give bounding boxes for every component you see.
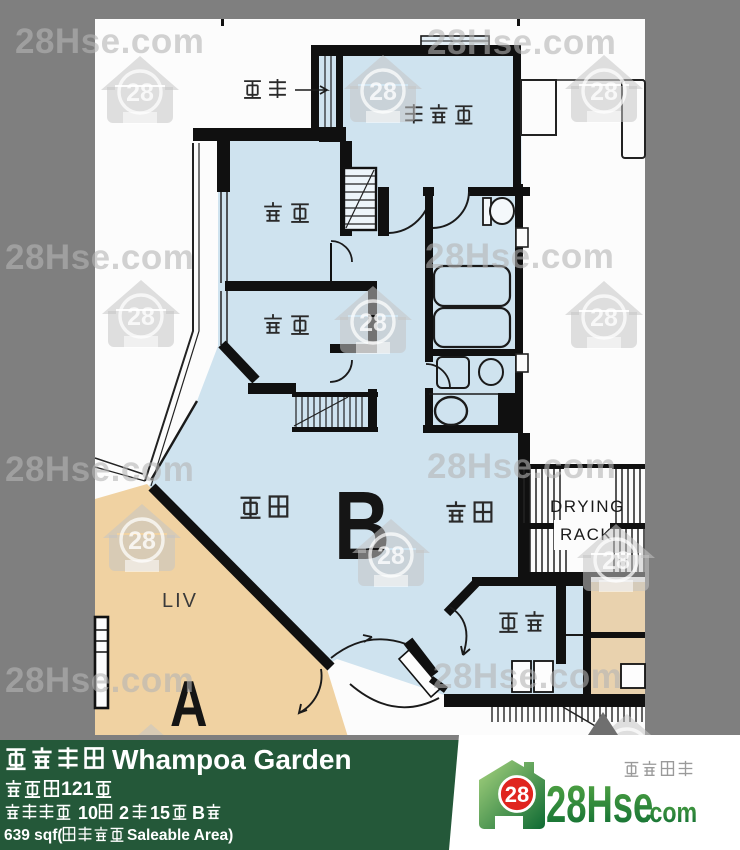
svg-text:28Hse.com: 28Hse.com — [427, 447, 616, 486]
svg-text:28Hse.com: 28Hse.com — [5, 238, 194, 277]
svg-text:B: B — [192, 803, 205, 823]
svg-text:28: 28 — [505, 782, 529, 807]
svg-text:2: 2 — [119, 803, 129, 823]
svg-text:Saleable Area): Saleable Area) — [127, 827, 233, 844]
svg-text:28Hse.com: 28Hse.com — [5, 450, 194, 489]
svg-text:28Hse.com: 28Hse.com — [433, 657, 622, 696]
svg-text:.com: .com — [643, 795, 697, 828]
svg-text:Whampoa Garden: Whampoa Garden — [112, 744, 352, 775]
svg-text:121: 121 — [61, 778, 94, 800]
svg-text:28Hse.com: 28Hse.com — [15, 22, 204, 61]
svg-text:28Hse: 28Hse — [546, 774, 653, 833]
svg-text:28Hse.com: 28Hse.com — [427, 23, 616, 62]
svg-text:DRYING: DRYING — [550, 497, 625, 516]
svg-text:639 sqf(: 639 sqf( — [4, 827, 63, 844]
svg-text:28Hse.com: 28Hse.com — [425, 237, 614, 276]
svg-text:28Hse.com: 28Hse.com — [5, 661, 194, 700]
svg-text:LIV: LIV — [162, 590, 198, 612]
svg-text:15: 15 — [150, 803, 170, 823]
svg-text:10: 10 — [78, 803, 98, 823]
